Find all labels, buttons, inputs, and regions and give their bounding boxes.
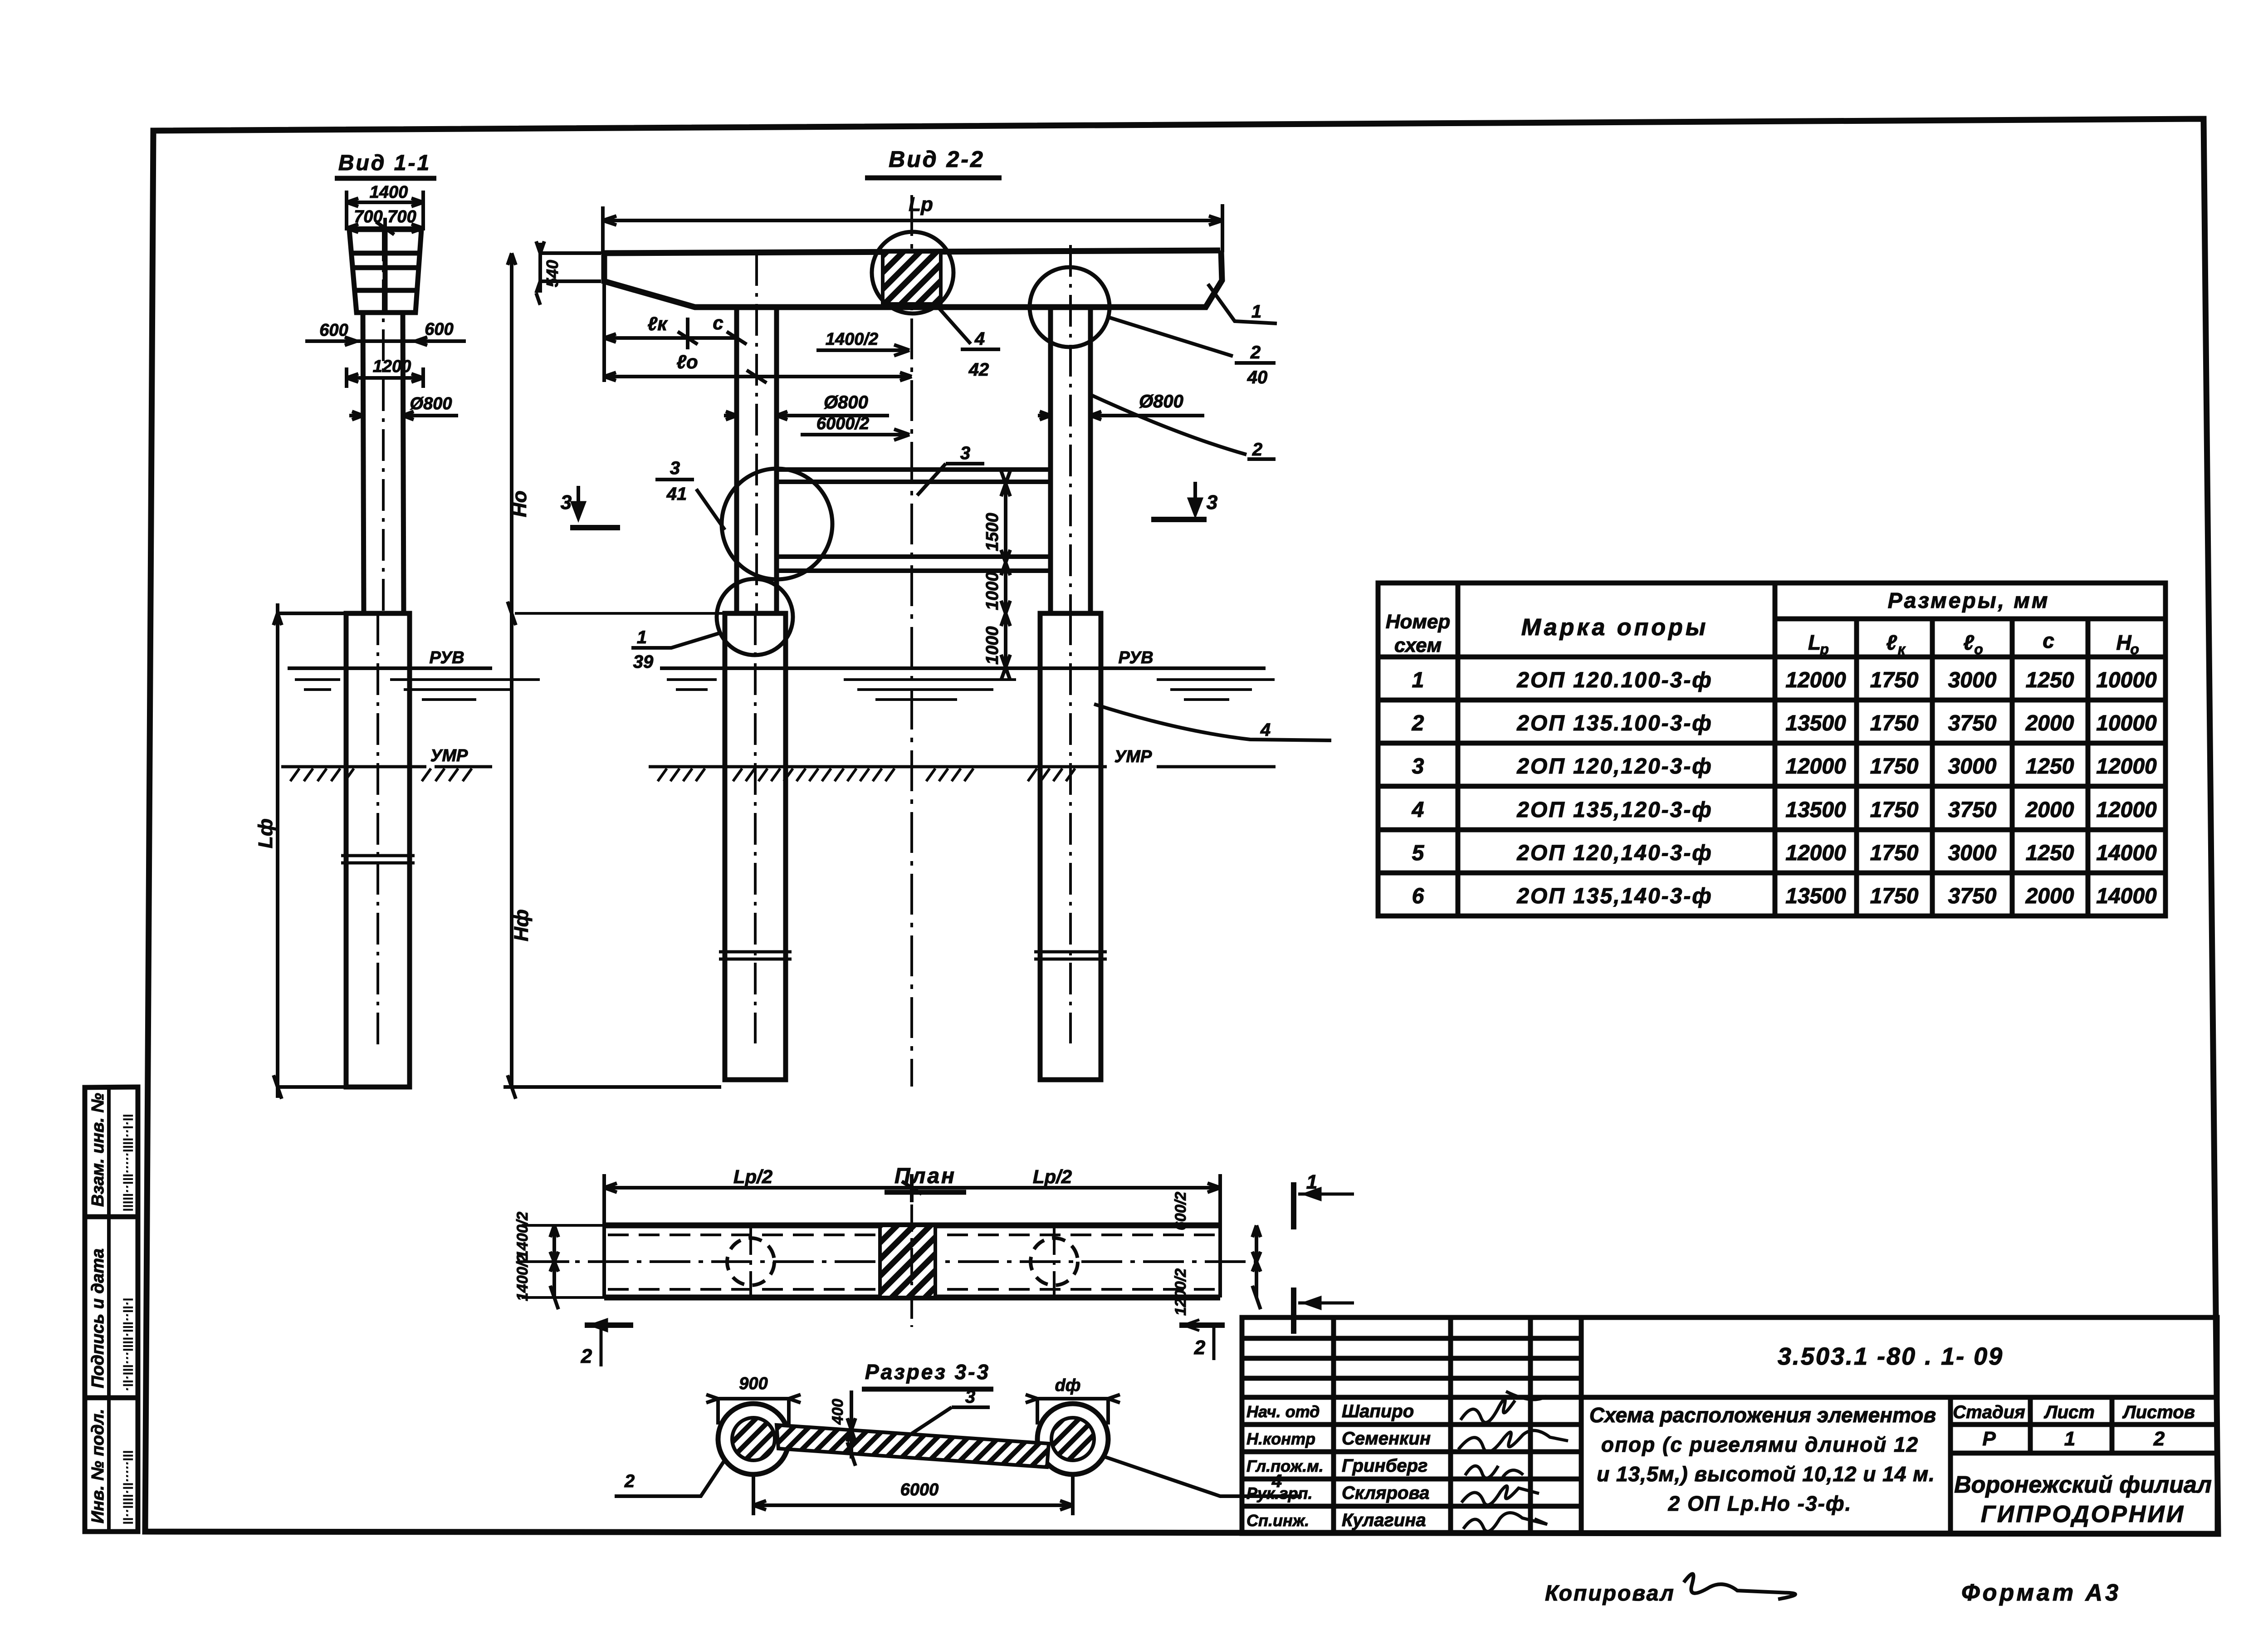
svg-text:Нф: Нф	[510, 909, 533, 941]
svg-text:р: р	[1819, 641, 1829, 657]
svg-text:УМР: УМР	[1114, 747, 1152, 766]
svg-text:2ОП 135,140-3-ф: 2ОП 135,140-3-ф	[1516, 884, 1713, 908]
svg-text:Н: Н	[2116, 631, 2131, 654]
svg-text:1: 1	[1251, 302, 1261, 322]
svg-text:13500: 13500	[1785, 798, 1846, 822]
svg-text:2: 2	[2153, 1428, 2165, 1450]
svg-text:Листов: Листов	[2122, 1402, 2195, 1422]
svg-text:1750: 1750	[1870, 668, 1919, 692]
svg-text:4: 4	[974, 329, 985, 349]
svg-text:10000: 10000	[2096, 668, 2157, 692]
svg-text:12000: 12000	[2096, 798, 2157, 822]
svg-text:Лист: Лист	[2043, 1402, 2095, 1422]
svg-text:1750: 1750	[1870, 798, 1919, 822]
svg-text:39: 39	[633, 652, 654, 672]
svg-text:Ø800: Ø800	[824, 392, 868, 412]
svg-text:с: с	[713, 312, 723, 333]
svg-text:2ОП 135,120-3-ф: 2ОП 135,120-3-ф	[1516, 798, 1713, 822]
svg-text:40: 40	[1247, 367, 1268, 387]
svg-text:Формат А3: Формат А3	[1961, 1580, 2121, 1606]
svg-text:400: 400	[829, 1399, 846, 1425]
svg-text:1750: 1750	[1870, 754, 1919, 778]
svg-text:2: 2	[581, 1345, 592, 1367]
svg-text:1400: 1400	[370, 183, 408, 202]
svg-text:2000: 2000	[2025, 711, 2074, 735]
svg-text:41: 41	[666, 484, 687, 504]
svg-text:3: 3	[965, 1387, 975, 1407]
svg-text:900: 900	[739, 1374, 767, 1393]
svg-text:1750: 1750	[1870, 884, 1919, 908]
svg-text:13500: 13500	[1785, 884, 1846, 908]
svg-text:3750: 3750	[1948, 798, 1997, 822]
svg-text:dф: dф	[1055, 1376, 1081, 1395]
svg-text:2000: 2000	[2025, 798, 2074, 822]
svg-text:1: 1	[637, 627, 647, 647]
svg-text:Марка опоры: Марка опоры	[1521, 614, 1708, 641]
svg-text:4: 4	[1412, 798, 1424, 822]
svg-text:Инв. № подл.: Инв. № подл.	[88, 1409, 108, 1523]
svg-text:42: 42	[968, 360, 989, 380]
svg-text:|||||··|||·····||||··|·||: |||||··|||·····||||··|·||	[122, 1113, 133, 1211]
svg-text:3000: 3000	[1948, 841, 1997, 865]
svg-text:1000: 1000	[983, 626, 1002, 665]
svg-text:3: 3	[561, 491, 572, 514]
svg-text:12000: 12000	[1785, 841, 1846, 865]
svg-text:1250: 1250	[2026, 841, 2074, 865]
svg-text:1250: 1250	[2026, 754, 2074, 778]
svg-text:Шапиро: Шапиро	[1342, 1401, 1414, 1421]
svg-text:6000: 6000	[900, 1480, 939, 1499]
svg-text:Lф: Lф	[254, 818, 277, 848]
svg-text:Подпись и дата: Подпись и дата	[88, 1248, 108, 1388]
svg-text:2ОП 135.100-3-ф: 2ОП 135.100-3-ф	[1516, 711, 1713, 735]
svg-text:2000: 2000	[2025, 884, 2074, 908]
svg-text:14000: 14000	[2096, 884, 2157, 908]
svg-text:1250: 1250	[2026, 668, 2074, 692]
svg-text:2ОП 120,140-3-ф: 2ОП 120,140-3-ф	[1516, 841, 1713, 865]
svg-text:1000: 1000	[983, 572, 1002, 610]
svg-text:Склярова: Склярова	[1342, 1483, 1429, 1503]
svg-text:Взам. инв. №: Взам. инв. №	[88, 1093, 108, 1207]
svg-text:Сп.инж.: Сп.инж.	[1246, 1511, 1309, 1530]
svg-text:L: L	[1808, 631, 1821, 654]
svg-text:3: 3	[1207, 491, 1217, 514]
svg-text:3: 3	[960, 443, 970, 463]
svg-text:1: 1	[1412, 668, 1424, 692]
svg-text:Семенкин: Семенкин	[1342, 1429, 1431, 1449]
svg-text:2: 2	[1412, 711, 1424, 735]
svg-text:Вид 2-2: Вид 2-2	[889, 147, 985, 172]
svg-text:Разрез 3-3: Разрез 3-3	[865, 1360, 990, 1384]
svg-text:12000: 12000	[1785, 754, 1846, 778]
svg-text:Ø800: Ø800	[410, 394, 452, 413]
svg-text:Гл.пож.м.: Гл.пож.м.	[1246, 1457, 1324, 1475]
svg-text:3000: 3000	[1948, 754, 1997, 778]
svg-text:Р: Р	[1982, 1428, 1996, 1450]
svg-text:||··||||·||·····|||: ||··||||·||·····|||	[122, 1450, 133, 1524]
svg-text:2: 2	[1194, 1337, 1206, 1359]
svg-text:4: 4	[1271, 1471, 1282, 1491]
svg-text:3750: 3750	[1948, 711, 1997, 735]
svg-text:5: 5	[1412, 841, 1425, 865]
svg-text:ℓк: ℓк	[648, 313, 668, 334]
svg-text:14000: 14000	[2096, 841, 2157, 865]
svg-text:Н.контр: Н.контр	[1246, 1430, 1315, 1448]
svg-text:и 13,5м,) высотой 10,12 и 14 м: и 13,5м,) высотой 10,12 и 14 м.	[1597, 1462, 1935, 1486]
svg-text:Копировал: Копировал	[1545, 1581, 1675, 1606]
svg-text:Гринберг: Гринберг	[1342, 1456, 1427, 1476]
svg-text:2: 2	[1250, 343, 1261, 362]
svg-text:Размеры, мм: Размеры, мм	[1888, 589, 2050, 613]
svg-text:3.503.1 -80 . 1- 09: 3.503.1 -80 . 1- 09	[1778, 1343, 2004, 1370]
svg-text:Схема расположения элементов: Схема расположения элементов	[1589, 1403, 1936, 1427]
svg-text:о: о	[2130, 641, 2139, 657]
svg-text:ГИПРОДОРНИИ: ГИПРОДОРНИИ	[1981, 1501, 2185, 1527]
svg-text:600/2: 600/2	[1172, 1192, 1189, 1230]
svg-text:1200/2: 1200/2	[1172, 1268, 1189, 1316]
svg-text:с: с	[2043, 629, 2054, 652]
svg-text:ℓо: ℓо	[676, 351, 698, 372]
svg-text:РУВ: РУВ	[1118, 648, 1153, 667]
svg-text:12000: 12000	[1785, 668, 1846, 692]
svg-text:3: 3	[1412, 754, 1424, 778]
svg-text:РУВ: РУВ	[429, 648, 464, 667]
svg-text:540: 540	[543, 260, 562, 287]
svg-text:ℓ: ℓ	[1886, 631, 1897, 654]
svg-text:Но: Но	[508, 490, 531, 517]
svg-text:2: 2	[624, 1471, 635, 1491]
svg-text:2ОП 120.100-3-ф: 2ОП 120.100-3-ф	[1516, 668, 1713, 692]
svg-text:3: 3	[670, 458, 680, 478]
svg-text:1400/2: 1400/2	[514, 1212, 531, 1259]
svg-text:1500: 1500	[983, 513, 1002, 551]
svg-text:Ø800: Ø800	[1139, 392, 1183, 411]
svg-text:2 ОП Lр.Но -3-ф.: 2 ОП Lр.Но -3-ф.	[1668, 1492, 1852, 1515]
svg-text:3000: 3000	[1948, 668, 1997, 692]
svg-text:Стадия: Стадия	[1953, 1402, 2025, 1422]
svg-text:1: 1	[2064, 1428, 2075, 1450]
svg-text:1750: 1750	[1870, 711, 1919, 735]
svg-text:1750: 1750	[1870, 841, 1919, 865]
svg-text:1400/2: 1400/2	[514, 1254, 531, 1301]
svg-text:Вид 1-1: Вид 1-1	[338, 151, 431, 175]
svg-text:о: о	[1974, 641, 1983, 657]
svg-text:Нач. отд: Нач. отд	[1246, 1402, 1320, 1421]
svg-text:12000: 12000	[2096, 754, 2157, 778]
svg-text:опор (с ригелями длиной 12: опор (с ригелями длиной 12	[1601, 1433, 1919, 1456]
svg-text:·||·|||···||||·|||··||·|: ·||·|||···||||·|||··||·|	[122, 1297, 133, 1391]
svg-text:10000: 10000	[2096, 711, 2157, 735]
svg-text:Lр/2: Lр/2	[733, 1166, 772, 1187]
svg-text:Lр/2: Lр/2	[1033, 1166, 1072, 1187]
svg-text:Номер: Номер	[1386, 611, 1451, 633]
svg-text:2ОП 120,120-3-ф: 2ОП 120,120-3-ф	[1516, 754, 1713, 778]
svg-text:к: к	[1898, 641, 1906, 657]
svg-text:1400/2: 1400/2	[826, 330, 878, 349]
svg-text:600: 600	[319, 321, 348, 340]
svg-text:ℓ: ℓ	[1963, 631, 1974, 654]
svg-text:13500: 13500	[1785, 711, 1846, 735]
svg-text:Воронежский филиал: Воронежский филиал	[1954, 1472, 2212, 1498]
svg-text:Кулагина: Кулагина	[1342, 1510, 1426, 1530]
svg-text:схем: схем	[1394, 634, 1442, 656]
svg-text:2: 2	[1252, 440, 1262, 460]
svg-text:3750: 3750	[1948, 884, 1997, 908]
svg-text:6: 6	[1412, 884, 1424, 908]
svg-text:600: 600	[425, 320, 453, 339]
svg-text:4: 4	[1260, 720, 1271, 740]
svg-text:УМР: УМР	[430, 746, 468, 765]
